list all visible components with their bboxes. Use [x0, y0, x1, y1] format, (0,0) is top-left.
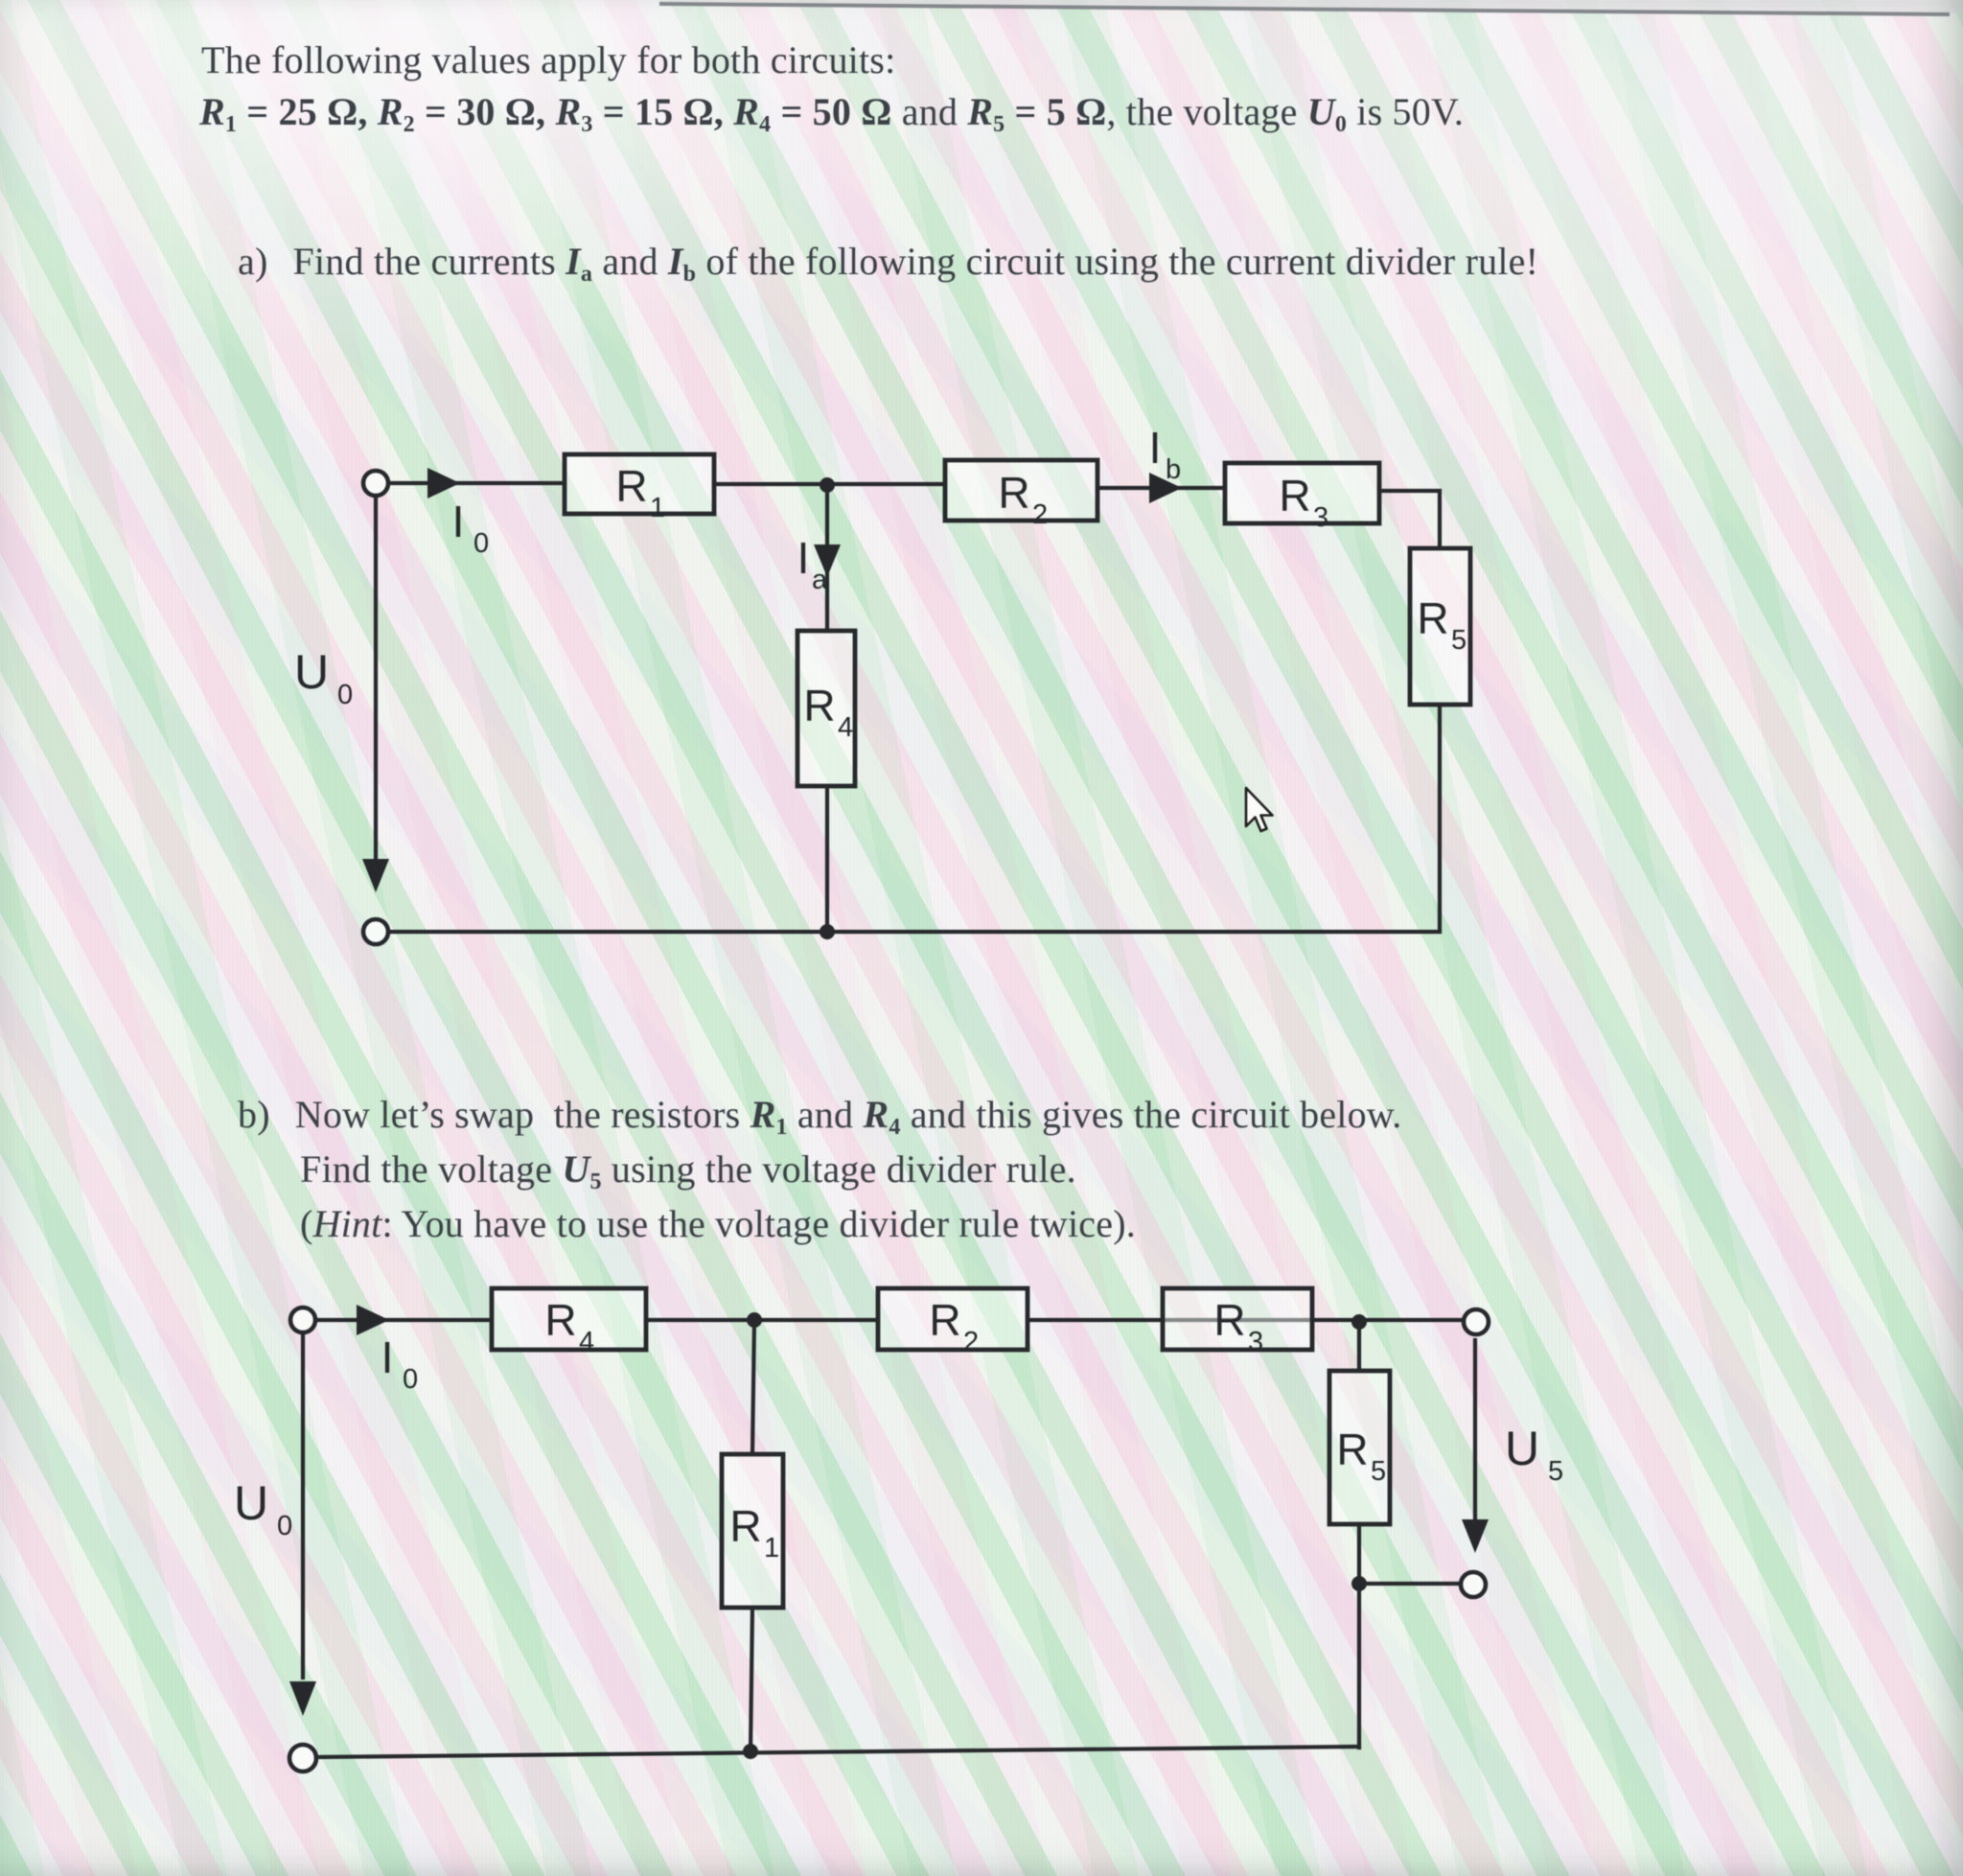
circuit-diagrams: I 0 I a I b U 0 R 1 R 2 R 3 R 4 R 5: [0, 0, 1963, 1876]
label-r3-sub: 3: [1248, 1327, 1263, 1357]
terminal: [363, 919, 388, 944]
terminal: [289, 1745, 316, 1772]
terminal: [290, 1308, 315, 1332]
wire: [752, 1320, 754, 1454]
label-r3: R: [1279, 471, 1310, 521]
screen-top-edge: [659, 0, 1963, 14]
label-u0-sub: 0: [277, 1511, 292, 1541]
voltage-arrow-u0: [289, 1681, 316, 1716]
label-i0-sub: 0: [403, 1364, 418, 1395]
label-i0: I: [381, 1332, 394, 1382]
label-r1-sub: 1: [764, 1533, 779, 1563]
terminal: [1464, 1309, 1489, 1334]
circuit-b-junctions: [743, 1312, 1367, 1759]
label-r2: R: [998, 468, 1029, 518]
photographed-worksheet: The following values apply for both circ…: [0, 0, 1963, 1876]
label-ib-sub: b: [1166, 454, 1181, 485]
label-r2-sub: 2: [963, 1327, 979, 1357]
label-i0-sub: 0: [473, 528, 489, 559]
label-r4: R: [803, 681, 835, 730]
label-ia-sub: a: [812, 565, 828, 595]
wire: [1379, 491, 1440, 548]
voltage-arrow-u0: [362, 859, 389, 892]
wire: [751, 1608, 752, 1751]
label-r5: R: [1336, 1424, 1368, 1474]
circuit-b: I 0 U 0 U 5 R 4 R 2 R 3 R 1 R 5: [234, 1288, 1563, 1772]
label-ia: I: [797, 533, 810, 583]
circuit-b-terminals: [289, 1308, 1489, 1772]
label-i0: I: [452, 497, 465, 546]
label-r1: R: [615, 461, 647, 511]
circuit-a: I 0 I a I b U 0 R 1 R 2 R 3 R 4 R 5: [294, 423, 1470, 944]
label-u0-sub: 0: [337, 680, 353, 710]
voltage-arrow-u5: [1462, 1519, 1489, 1553]
label-r4: R: [544, 1295, 576, 1345]
current-arrow-i0: [357, 1305, 389, 1335]
current-arrow-i0: [427, 468, 460, 498]
label-u0: U: [234, 1476, 268, 1530]
label-r4-sub: 4: [838, 712, 853, 743]
mouse-cursor: [1246, 788, 1273, 831]
junction-dot: [743, 1744, 758, 1759]
label-ib: I: [1149, 423, 1162, 473]
label-u5-sub: 5: [1548, 1456, 1563, 1487]
junction-dot: [1351, 1576, 1367, 1591]
label-r3-sub: 3: [1313, 502, 1328, 533]
terminal: [363, 471, 388, 496]
junction-dot: [747, 1312, 762, 1328]
label-r5: R: [1417, 593, 1448, 643]
junction-dot: [1351, 1314, 1367, 1330]
label-r2: R: [929, 1295, 960, 1345]
label-r5-sub: 5: [1371, 1456, 1386, 1487]
label-r5-sub: 5: [1451, 625, 1466, 656]
label-u0: U: [294, 645, 329, 699]
label-u5: U: [1505, 1422, 1539, 1475]
label-r2-sub: 2: [1032, 499, 1048, 530]
circuit-b-arrows: [289, 1305, 1489, 1716]
circuit-a-wires: [376, 483, 1440, 932]
circuit-b-wires: [303, 1320, 1475, 1757]
junction-dot: [820, 924, 835, 939]
junction-dot: [820, 477, 835, 493]
wire: [315, 1747, 1359, 1757]
label-r1-sub: 1: [650, 493, 665, 523]
label-r4-sub: 4: [579, 1327, 594, 1357]
terminal: [1461, 1572, 1486, 1597]
circuit-a-labels: I 0 I a I b U 0 R 1 R 2 R 3 R 4 R 5: [294, 423, 1466, 743]
label-r3: R: [1213, 1295, 1245, 1345]
cursor-arrow-icon: [1246, 788, 1273, 831]
label-r1: R: [729, 1501, 761, 1551]
